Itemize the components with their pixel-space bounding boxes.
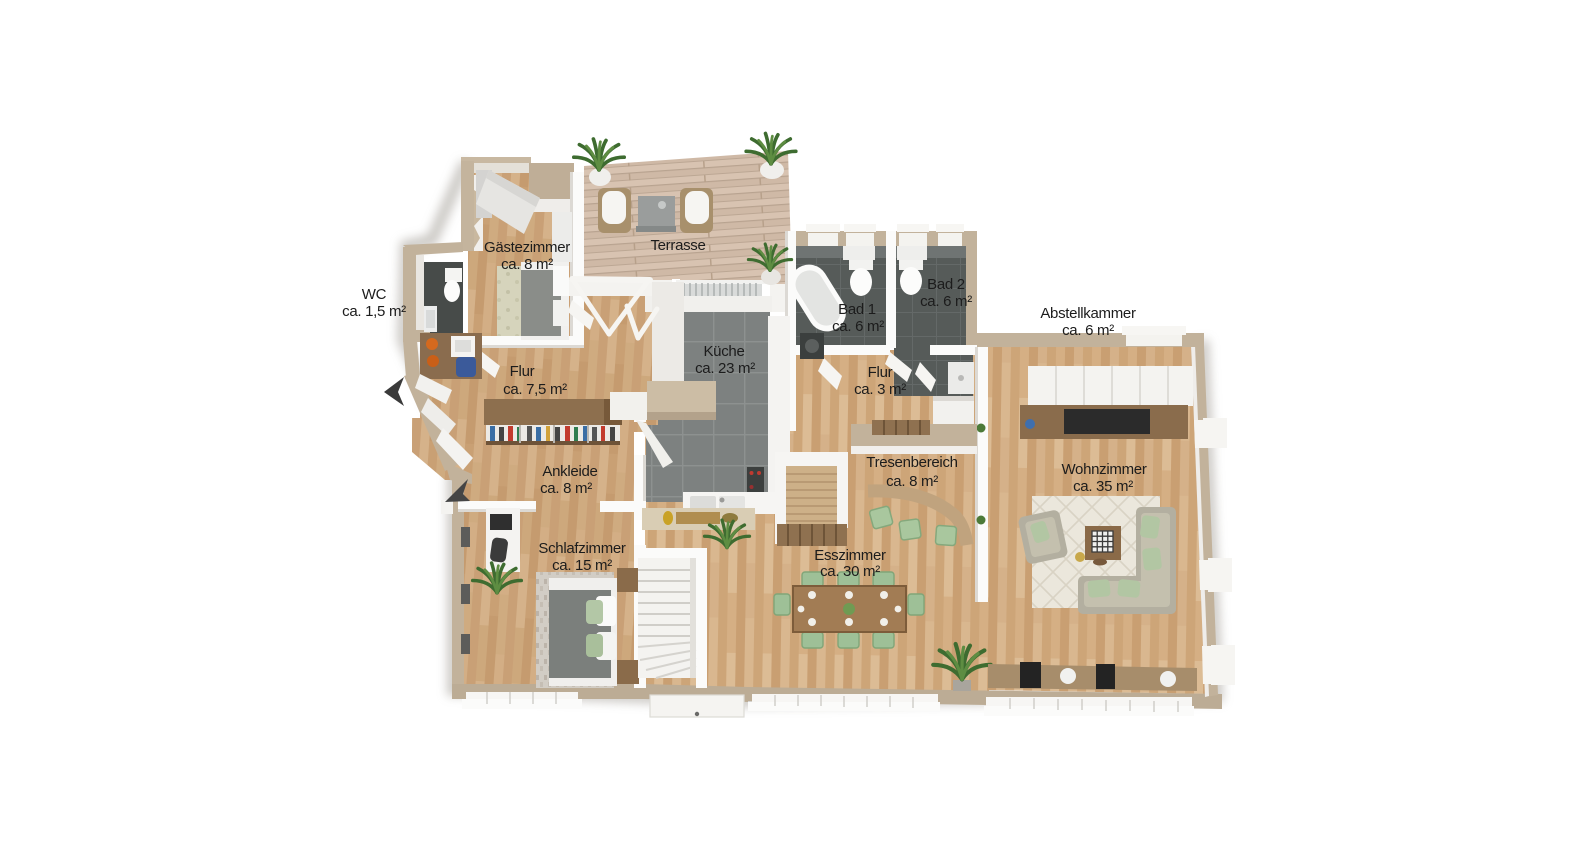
svg-text:ca. 8 m²: ca. 8 m² bbox=[540, 480, 592, 497]
svg-text:Gästezimmer: Gästezimmer bbox=[484, 239, 570, 256]
svg-text:ca. 8 m²: ca. 8 m² bbox=[501, 256, 553, 273]
svg-text:Küche: Küche bbox=[703, 343, 744, 360]
svg-text:Flur: Flur bbox=[868, 364, 893, 381]
svg-text:Wohnzimmer: Wohnzimmer bbox=[1061, 461, 1146, 478]
svg-text:Abstellkammer: Abstellkammer bbox=[1040, 305, 1136, 322]
svg-text:ca. 35 m²: ca. 35 m² bbox=[1073, 478, 1133, 495]
svg-text:ca. 23 m²: ca. 23 m² bbox=[695, 360, 755, 377]
svg-text:Terrasse: Terrasse bbox=[650, 237, 705, 254]
svg-text:Bad 2: Bad 2 bbox=[927, 276, 965, 293]
svg-text:Schlafzimmer: Schlafzimmer bbox=[538, 540, 626, 557]
svg-text:WC: WC bbox=[362, 286, 387, 303]
svg-text:ca. 30 m²: ca. 30 m² bbox=[820, 563, 880, 580]
svg-text:ca. 3 m²: ca. 3 m² bbox=[854, 381, 906, 398]
svg-text:Tresenbereich: Tresenbereich bbox=[866, 454, 957, 471]
svg-text:ca. 6 m²: ca. 6 m² bbox=[832, 318, 884, 335]
svg-text:Esszimmer: Esszimmer bbox=[814, 547, 886, 564]
svg-text:ca. 8 m²: ca. 8 m² bbox=[886, 473, 938, 490]
svg-text:ca. 6 m²: ca. 6 m² bbox=[1062, 322, 1114, 339]
svg-text:ca. 6 m²: ca. 6 m² bbox=[920, 293, 972, 310]
svg-text:ca. 15 m²: ca. 15 m² bbox=[552, 557, 612, 574]
svg-text:Ankleide: Ankleide bbox=[542, 463, 597, 480]
svg-text:ca. 7,5 m²: ca. 7,5 m² bbox=[503, 381, 567, 398]
svg-text:Flur: Flur bbox=[510, 363, 535, 380]
svg-text:Bad 1: Bad 1 bbox=[838, 301, 876, 318]
svg-text:ca. 1,5 m²: ca. 1,5 m² bbox=[342, 303, 406, 320]
